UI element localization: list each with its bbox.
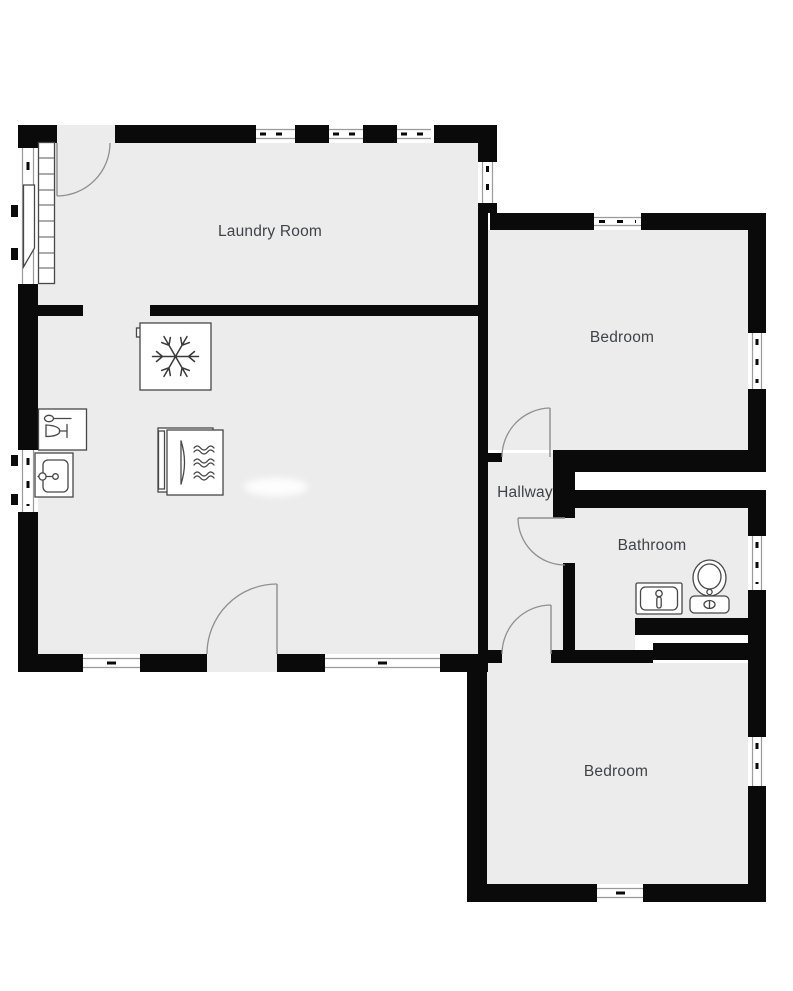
kitchen-sink [35, 453, 73, 497]
wall-segment [490, 213, 594, 230]
room-label-bathroom: Bathroom [618, 537, 687, 554]
radiator [39, 143, 55, 284]
bathroom-door-opening-floor [563, 518, 575, 563]
window-stub [11, 205, 18, 217]
room-label-bedroom-bottom: Bedroom [584, 763, 648, 780]
window-stub [11, 248, 18, 260]
wall-segment [18, 125, 38, 150]
wall-segment [748, 490, 766, 536]
window [748, 536, 766, 590]
wall-segment [434, 125, 497, 143]
window-stub [11, 455, 18, 466]
oven [158, 428, 223, 495]
wall-segment [115, 125, 256, 143]
wall-segment [467, 663, 487, 902]
window [748, 333, 766, 389]
window [329, 125, 363, 143]
wall-segment [643, 884, 766, 902]
basin-faucet-icon [656, 590, 662, 608]
room-label-laundry: Laundry Room [218, 223, 322, 240]
window [748, 737, 766, 786]
bedroom-bottom-door-opening-floor [502, 650, 551, 663]
wall-segment [551, 650, 653, 663]
window [597, 884, 643, 902]
wall-segment [575, 490, 766, 508]
wall-segment [748, 213, 766, 333]
laundry-opening-floor [83, 305, 150, 316]
freezer [137, 323, 212, 390]
window [397, 125, 431, 143]
room-label-bedroom-top: Bedroom [590, 329, 654, 346]
window [256, 125, 295, 143]
wall-segment [478, 213, 488, 655]
wall-segment [18, 654, 83, 672]
window [594, 213, 641, 230]
wall-segment [150, 305, 478, 316]
toilet [690, 560, 729, 613]
window-stub [11, 494, 18, 505]
wall-segment [748, 643, 766, 737]
floor-plan-drawing: Laundry Room Bedroom Hallway Bathroom Be… [0, 0, 793, 991]
wall-segment [295, 125, 329, 143]
dishwasher [39, 409, 87, 450]
floor-plan-canvas: Laundry Room Bedroom Hallway Bathroom Be… [0, 0, 793, 991]
wall-segment [18, 512, 38, 672]
window [83, 654, 140, 672]
watermark-smudge [244, 478, 308, 496]
window [478, 162, 497, 203]
wall-segment [635, 618, 748, 635]
wall-segment [478, 143, 497, 162]
wall-segment [641, 213, 766, 230]
toilet-icon [690, 560, 729, 613]
wall-segment [18, 284, 38, 450]
wall-segment [748, 590, 766, 643]
window [325, 654, 440, 672]
wall-segment [563, 563, 575, 663]
wall-segment [748, 786, 766, 902]
patio-door-opening-floor [207, 654, 277, 672]
wall-segment [488, 453, 502, 462]
entry-door-opening-floor [57, 125, 115, 143]
hallway-floor-lower [488, 518, 563, 650]
wall-segment [478, 203, 497, 213]
window [18, 148, 38, 284]
wall-segment [363, 125, 397, 143]
room-label-hallway: Hallway [497, 484, 553, 501]
bathroom-sink [636, 583, 682, 614]
wall-segment [467, 884, 597, 902]
wall-segment [553, 450, 575, 518]
wall-segment [553, 450, 766, 472]
wall-segment [277, 654, 325, 672]
wall-segment [38, 305, 83, 316]
bathroom-floor-nook [575, 618, 635, 650]
wall-segment [478, 650, 502, 663]
wall-segment [140, 654, 207, 672]
